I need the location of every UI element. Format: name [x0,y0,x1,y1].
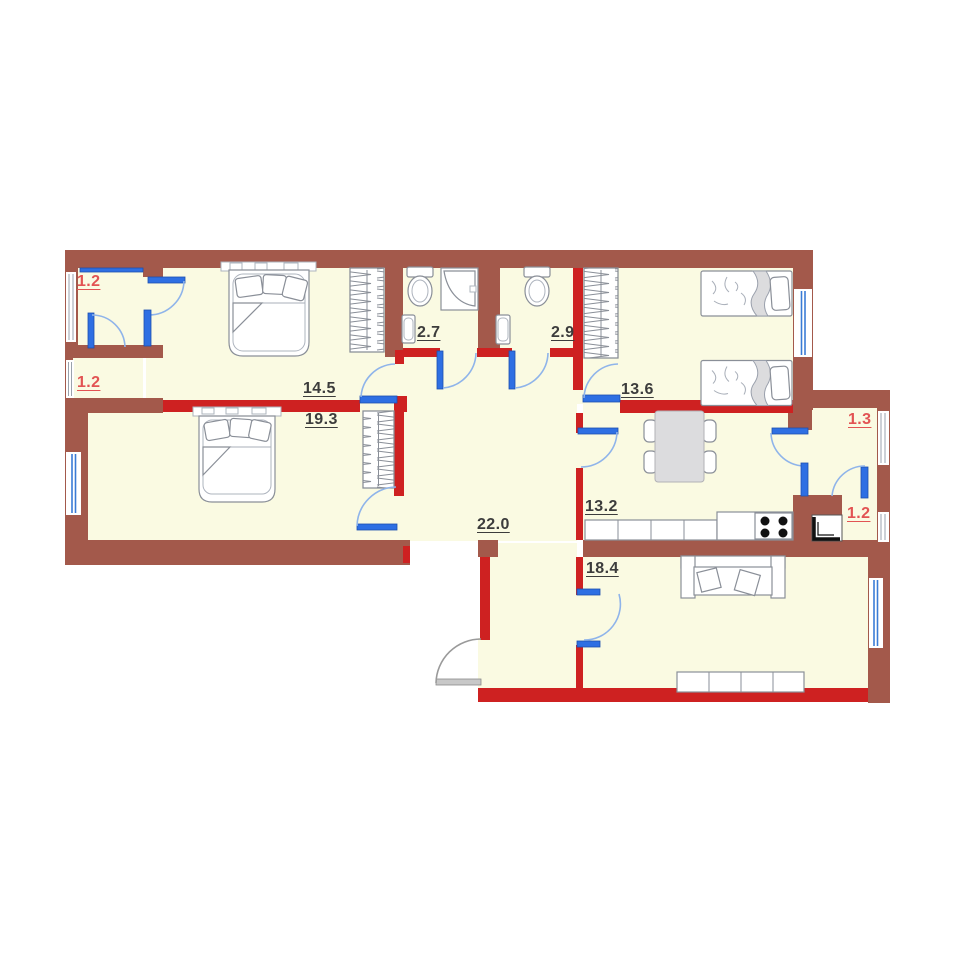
area-label-loggia-right-top: 1.3 [848,412,871,428]
toilet-icon [524,267,550,306]
area-label-bathroom-second: 2.9 [551,325,574,341]
wardrobe-icon [363,411,394,488]
floor-plan-page: 1.2 1.2 14.5 19.3 2.7 2.9 13.6 13.2 22.0… [0,0,960,960]
area-label-corridor: 22.0 [477,517,510,533]
stove-icon [755,513,792,539]
area-label-loggia-top-left: 1.2 [77,274,100,290]
double-bed-icon [221,262,316,356]
single-bed-icon [701,271,792,316]
dining-table-icon [655,411,704,482]
double-bed-icon [193,407,281,502]
sofa-icon [681,556,785,598]
single-bed-icon [701,361,792,406]
area-label-bathroom-first: 2.7 [417,325,440,341]
area-label-bedroom-kids: 13.6 [621,382,654,398]
area-label-living-room: 18.4 [586,561,619,577]
area-label-bedroom-left: 19.3 [305,412,338,428]
entry-door-icon [436,639,481,685]
sideboard-icon [677,672,804,692]
floor-plan-canvas [0,0,960,960]
area-label-bedroom-main: 14.5 [303,381,336,397]
area-label-loggia-bottom-left: 1.2 [77,375,100,391]
area-label-loggia-right-bottom: 1.2 [847,506,870,522]
shower-icon [441,268,478,310]
fridge-icon [812,515,842,541]
wardrobe-icon [350,268,384,352]
wardrobe-icon [584,268,618,358]
sink-icon [496,315,510,344]
room-floors [72,268,878,690]
area-label-kitchen: 13.2 [585,499,618,515]
toilet-icon [407,267,433,306]
sink-icon [402,315,415,343]
